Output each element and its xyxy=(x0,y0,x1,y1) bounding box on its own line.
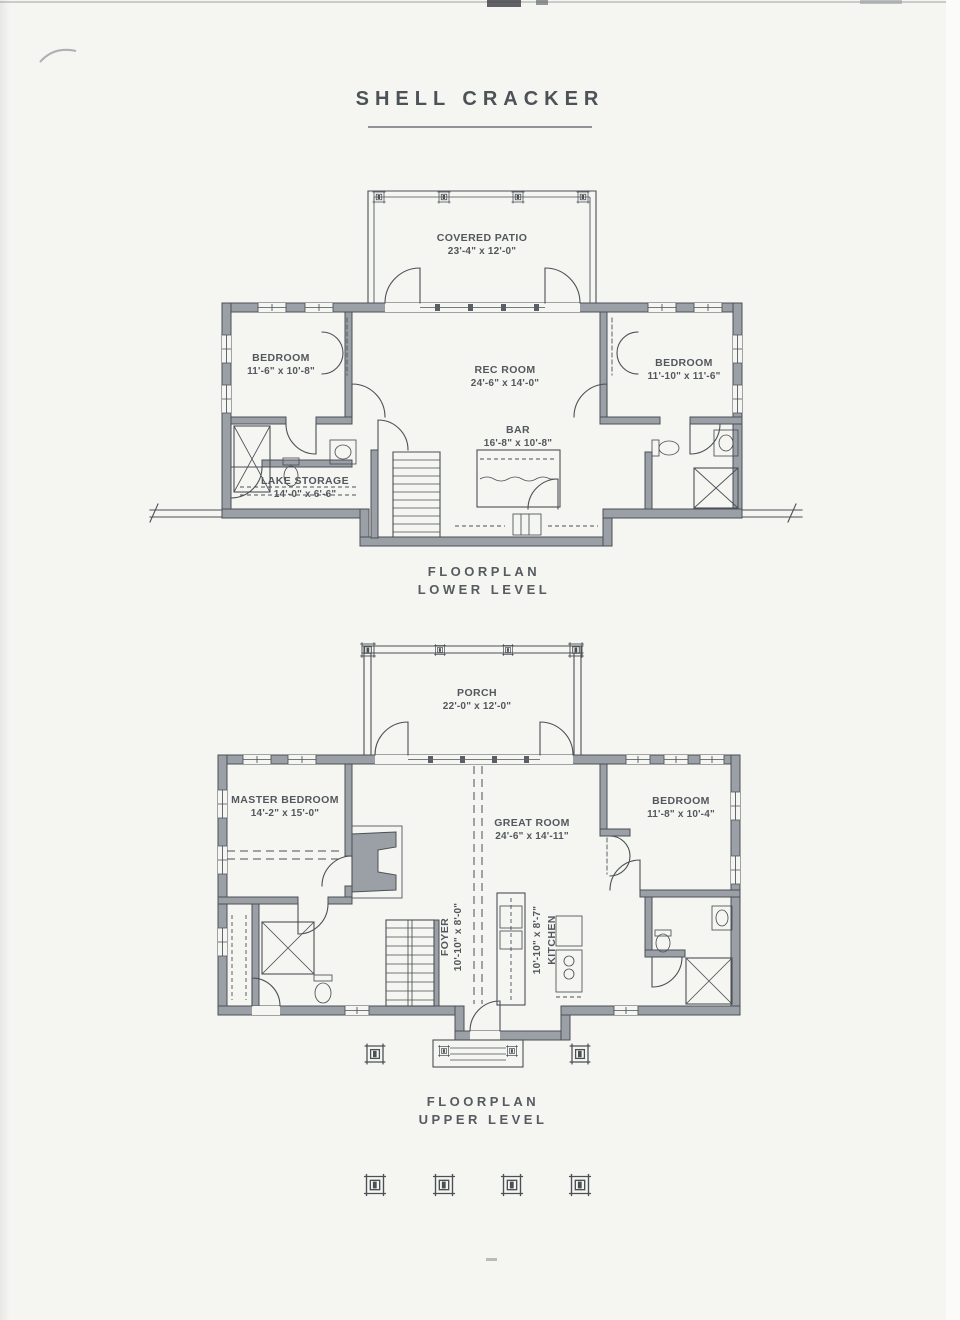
caption-line1: FLOORPLAN xyxy=(418,563,550,581)
upper-stairs xyxy=(386,920,434,1006)
room-label-great-room: GREAT ROOM 24'-6" x 14'-11" xyxy=(494,816,570,844)
room-name: KITCHEN xyxy=(545,906,559,974)
room-label-bar: BAR 16'-8" x 10'-8" xyxy=(484,423,552,451)
caption-line2: LOWER LEVEL xyxy=(418,581,550,599)
room-dims: 24'-6" x 14'-11" xyxy=(494,830,570,844)
room-dims: 10'-10" x 8'-7" xyxy=(531,906,545,974)
room-dims: 16'-8" x 10'-8" xyxy=(484,437,552,451)
caption-lower-level: FLOORPLAN LOWER LEVEL xyxy=(418,563,550,599)
room-label-foyer: FOYER 10'-10" x 8'-0" xyxy=(438,903,466,971)
deck-columns-row xyxy=(364,1174,591,1196)
room-name: LAKE STORAGE xyxy=(261,474,349,488)
room-name: COVERED PATIO xyxy=(437,231,528,245)
room-name: BEDROOM xyxy=(647,356,720,370)
upper-doors xyxy=(252,722,682,1031)
room-dims: 11'-10" x 11'-6" xyxy=(647,370,720,384)
room-label-lower-bedroom-left: BEDROOM 11'-6" x 10'-8" xyxy=(247,351,315,379)
room-dims: 23'-4" x 12'-0" xyxy=(437,245,528,259)
room-name: BEDROOM xyxy=(247,351,315,365)
room-dims: 22'-0" x 12'-0" xyxy=(443,700,511,714)
lower-walls xyxy=(222,303,742,546)
room-dims: 14'-2" x 15'-0" xyxy=(231,807,339,821)
room-label-master-bedroom: MASTER BEDROOM 14'-2" x 15'-0" xyxy=(231,793,339,821)
lower-stairs xyxy=(393,452,440,536)
scan-artifacts xyxy=(0,0,960,1261)
room-label-rec-room: REC ROOM 24'-6" x 14'-0" xyxy=(471,363,539,391)
room-name: REC ROOM xyxy=(471,363,539,377)
room-name: FOYER xyxy=(438,903,452,971)
room-dims: 11'-8" x 10'-4" xyxy=(647,808,715,822)
room-label-kitchen: 10'-10" x 8'-7" KITCHEN xyxy=(531,906,559,974)
bar-counter xyxy=(477,450,560,507)
scanned-floorplan-sheet: SHELL CRACKER COVERED PATIO 23'-4" x 12'… xyxy=(0,0,960,1320)
room-label-lake-storage: LAKE STORAGE 14'-0" x 6'-6" xyxy=(261,474,349,502)
room-name: BAR xyxy=(484,423,552,437)
room-label-covered-patio: COVERED PATIO 23'-4" x 12'-0" xyxy=(437,231,528,259)
room-dims: 11'-6" x 10'-8" xyxy=(247,365,315,379)
room-name: MASTER BEDROOM xyxy=(231,793,339,807)
room-name: GREAT ROOM xyxy=(494,816,570,830)
entry-steps xyxy=(365,1040,591,1067)
sheet-title: SHELL CRACKER xyxy=(356,88,605,111)
caption-upper-level: FLOORPLAN UPPER LEVEL xyxy=(419,1093,548,1129)
fireplace xyxy=(352,826,402,898)
room-label-lower-bedroom-right: BEDROOM 11'-10" x 11'-6" xyxy=(647,356,720,384)
room-label-porch: PORCH 22'-0" x 12'-0" xyxy=(443,686,511,714)
scan-edge-white-strip xyxy=(946,0,960,1320)
room-dims: 10'-10" x 8'-0" xyxy=(452,903,466,971)
room-name: BEDROOM xyxy=(647,794,715,808)
room-label-upper-bedroom: BEDROOM 11'-8" x 10'-4" xyxy=(647,794,715,822)
room-name: PORCH xyxy=(443,686,511,700)
room-dims: 24'-6" x 14'-0" xyxy=(471,377,539,391)
caption-line2: UPPER LEVEL xyxy=(419,1111,548,1129)
caption-line1: FLOORPLAN xyxy=(419,1093,548,1111)
room-dims: 14'-0" x 6'-6" xyxy=(261,488,349,502)
